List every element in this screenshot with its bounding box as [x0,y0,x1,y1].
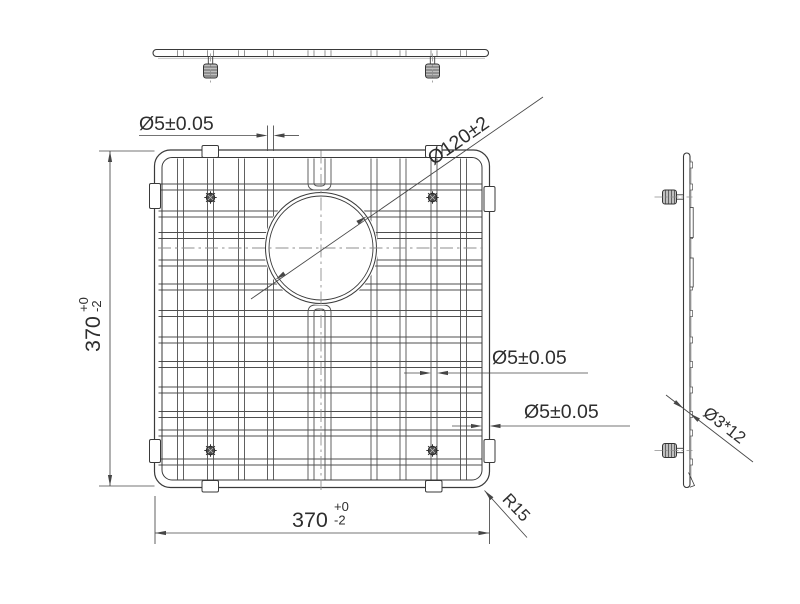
dim-grid-height: 370 +0 -2 [76,297,105,352]
frame-clip [426,481,443,493]
dim-foot-spec: Ø3*12 [700,403,750,447]
frame-clip [202,146,219,158]
dim-grid-width-value: 370 [292,508,328,532]
foot-screw [204,444,216,456]
dim-foot-spec-label: Ø3*12 [700,403,750,447]
dimension-lines [99,97,753,544]
dim-corner-radius-label: R15 [499,490,534,526]
technical-drawing: Ø5±0.05 Ø120±2 370 +0 -2 Ø5±0.05 Ø5±0.05… [0,0,800,604]
dim-corner-radius: R15 [499,490,534,526]
dim-frame-wire-diameter-label: Ø5±0.05 [524,401,599,423]
dim-grid-height-lower-tol: -2 [89,300,104,312]
frame-clip [150,440,161,463]
drawing-canvas: Ø5±0.05 Ø120±2 370 +0 -2 Ø5±0.05 Ø5±0.05… [0,0,800,604]
foot-screw [204,191,216,203]
dim-hole-diameter: Ø120±2 [424,112,493,170]
dim-grid-width: 370 +0 -2 [292,499,349,532]
foot-screw [426,191,438,203]
frame-clip [202,481,219,493]
frame-clip [484,440,495,463]
dim-grid-height-value: 370 [81,316,105,352]
dim-grid-width-lower-tol: -2 [334,513,346,528]
dim-hole-diameter-label: Ø120±2 [424,112,493,170]
side-view [655,153,695,488]
top-view [153,50,489,84]
frame-clip [150,184,161,209]
dim-wire-diameter-top-label: Ø5±0.05 [139,113,214,135]
dim-wire-diameter-middle-label: Ø5±0.05 [492,347,567,369]
frame-clip [484,187,495,212]
foot-screw [426,444,438,456]
